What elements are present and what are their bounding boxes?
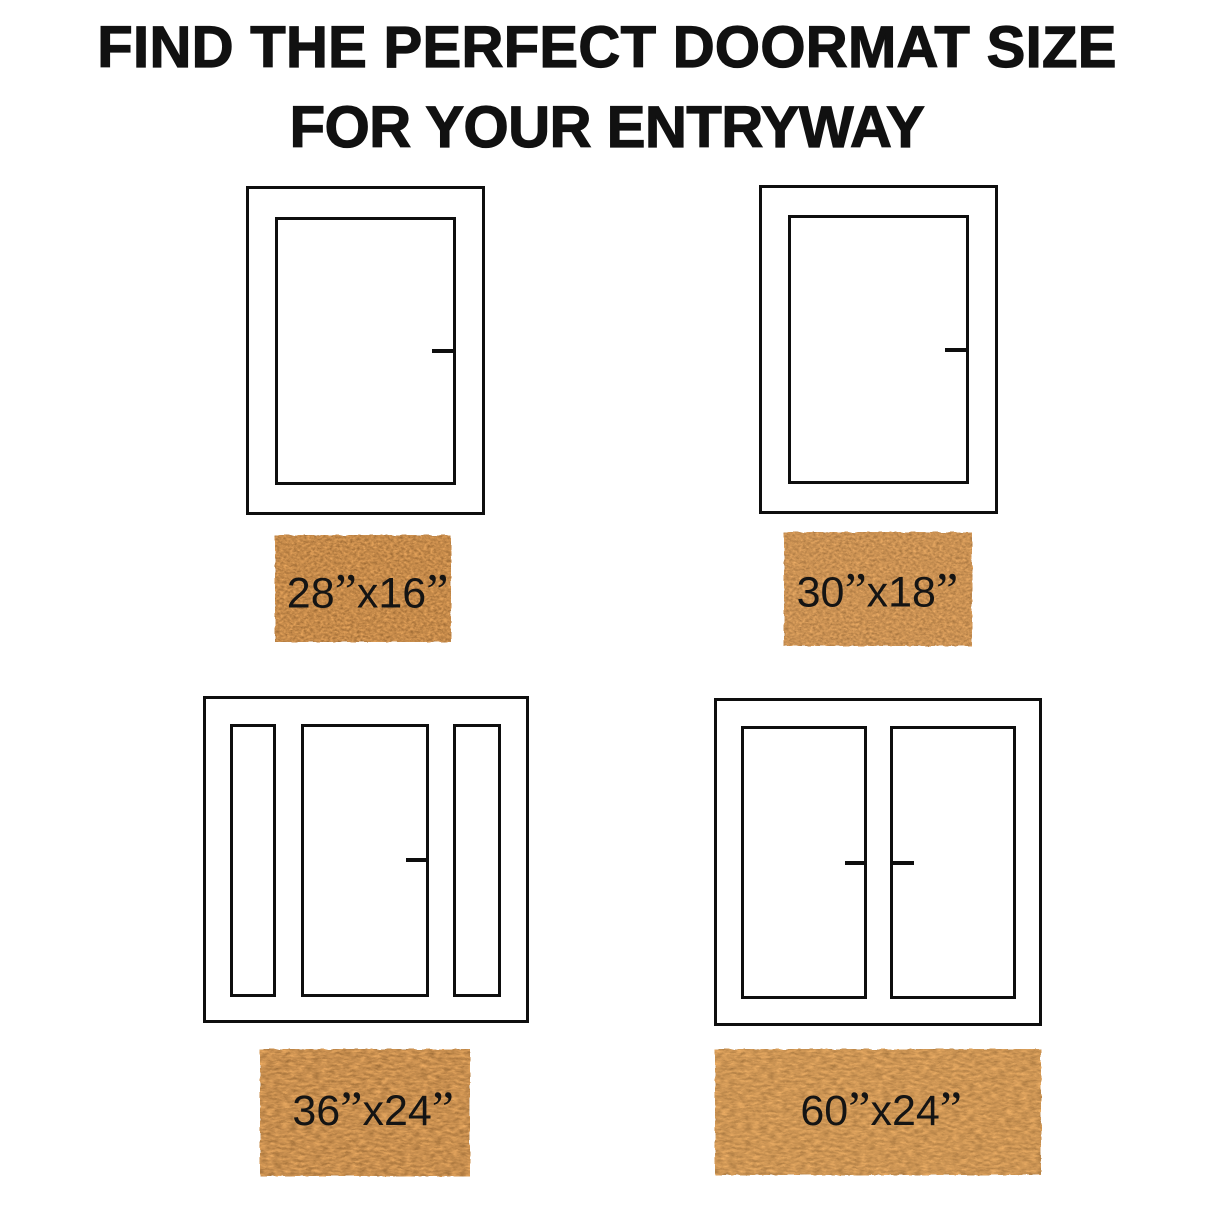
svg-text:36”x24”: 36”x24” [292, 1080, 454, 1136]
svg-text:60”x24”: 60”x24” [801, 1080, 963, 1136]
svg-text:30”x18”: 30”x18” [797, 561, 959, 617]
svg-text:28”x16”: 28”x16” [287, 562, 449, 618]
